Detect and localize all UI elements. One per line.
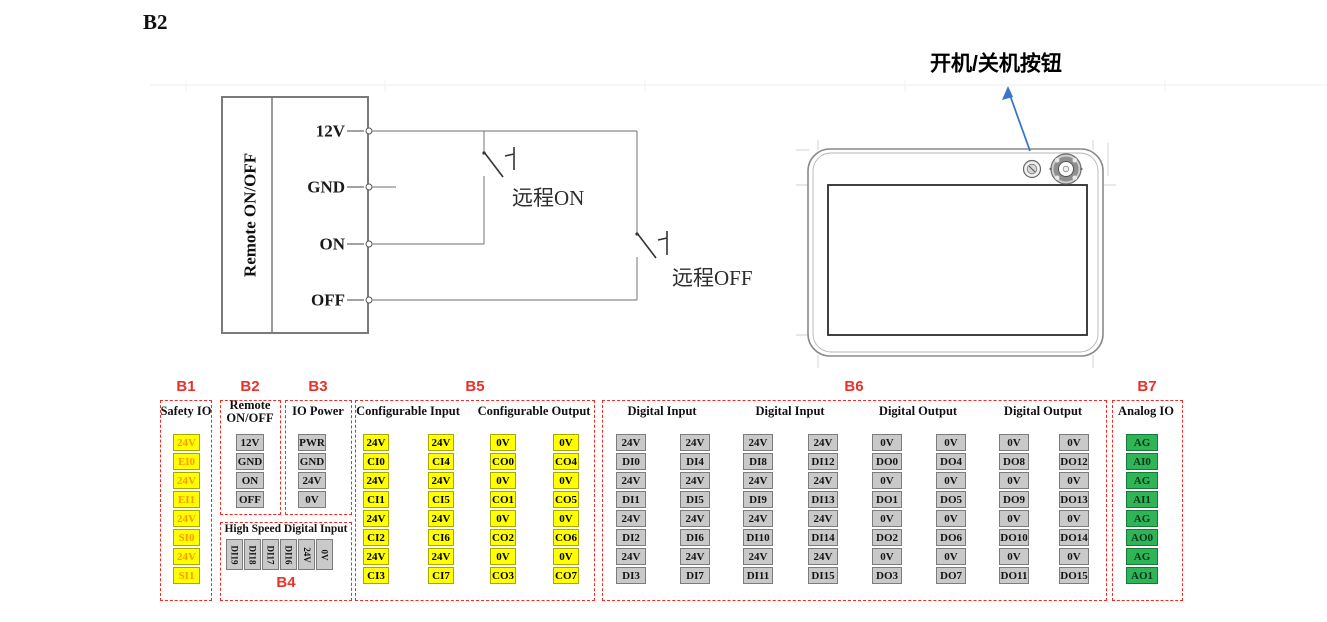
terminal-cell-24v: 24V — [616, 510, 646, 527]
terminal-cell-di0: DI0 — [616, 453, 646, 470]
group-title-b6: Digital Output — [1004, 405, 1082, 418]
terminal-cell-co1: CO1 — [490, 491, 516, 508]
terminal-cell-0v: 0V — [1059, 548, 1089, 565]
terminal-cell-do8: DO8 — [999, 453, 1029, 470]
terminal-cell-24v: 24V — [616, 472, 646, 489]
terminal-cell-0v: 0V — [936, 472, 966, 489]
terminal-cell-di7: DI7 — [680, 567, 710, 584]
terminal-cell-do1: DO1 — [872, 491, 902, 508]
section-label-b5: B5 — [465, 378, 484, 395]
terminal-cell-di19: DI19 — [226, 539, 243, 570]
terminal-cell-do0: DO0 — [872, 453, 902, 470]
terminal-cell-do6: DO6 — [936, 529, 966, 546]
terminal-cell-co5: CO5 — [553, 491, 579, 508]
terminal-cell-24v: 24V — [363, 548, 389, 565]
group-title-b6: Digital Input — [755, 405, 824, 418]
terminal-cell-do9: DO9 — [999, 491, 1029, 508]
terminal-cell-24v: 24V — [298, 539, 315, 570]
terminal-cell-co4: CO4 — [553, 453, 579, 470]
terminal-cell-do3: DO3 — [872, 567, 902, 584]
terminal-cell-ci6: CI6 — [428, 529, 454, 546]
terminal-cell-24v: 24V — [743, 472, 773, 489]
terminal-cell-12v: 12V — [236, 434, 264, 451]
terminal-cell-24v: 24V — [428, 510, 454, 527]
terminal-cell-do12: DO12 — [1059, 453, 1089, 470]
terminal-cell-24v: 24V — [808, 510, 838, 527]
terminal-cell-ag: AG — [1126, 434, 1158, 451]
terminal-cell-ci0: CI0 — [363, 453, 389, 470]
terminal-cell-do11: DO11 — [999, 567, 1029, 584]
terminal-cell-ai0: AI0 — [1126, 453, 1158, 470]
group-title-b4: High Speed Digital Input — [224, 523, 347, 536]
terminal-cell-di5: DI5 — [680, 491, 710, 508]
terminal-cell-ci2: CI2 — [363, 529, 389, 546]
terminal-cell-0v: 0V — [490, 548, 516, 565]
terminal-cell-on: ON — [236, 472, 264, 489]
terminal-cell-di6: DI6 — [680, 529, 710, 546]
terminal-cell-ci3: CI3 — [363, 567, 389, 584]
terminal-cell-24v: 24V — [680, 510, 710, 527]
terminal-cell-0v: 0V — [936, 548, 966, 565]
terminal-cell-ao1: AO1 — [1126, 567, 1158, 584]
group-title-b1: Safety IO — [160, 405, 211, 418]
terminal-cell-off: OFF — [236, 491, 264, 508]
terminal-cell-co7: CO7 — [553, 567, 579, 584]
terminal-cell-24v: 24V — [743, 434, 773, 451]
terminal-cell-0v: 0V — [872, 472, 902, 489]
terminal-cell-co3: CO3 — [490, 567, 516, 584]
terminal-cell-do7: DO7 — [936, 567, 966, 584]
terminal-cell-0v: 0V — [999, 434, 1029, 451]
terminal-cell-24v: 24V — [173, 548, 200, 565]
terminal-cell-24v: 24V — [743, 510, 773, 527]
terminal-cell-di3: DI3 — [616, 567, 646, 584]
terminal-cell-0v: 0V — [490, 434, 516, 451]
terminal-cell-di18: DI18 — [244, 539, 261, 570]
terminal-cell-0v: 0V — [936, 510, 966, 527]
terminal-cell-gnd: GND — [298, 453, 326, 470]
terminal-cell-24v: 24V — [298, 472, 326, 489]
terminal-cell-do2: DO2 — [872, 529, 902, 546]
terminal-cell-24v: 24V — [428, 548, 454, 565]
terminal-cell-ag: AG — [1126, 510, 1158, 527]
terminal-cell-di17: DI17 — [262, 539, 279, 570]
terminal-cell-gnd: GND — [236, 453, 264, 470]
terminal-cell-24v: 24V — [808, 548, 838, 565]
terminal-cell-co0: CO0 — [490, 453, 516, 470]
terminal-cell-di8: DI8 — [743, 453, 773, 470]
terminal-cell-do15: DO15 — [1059, 567, 1089, 584]
terminal-cell-0v: 0V — [872, 548, 902, 565]
terminal-cell-ag: AG — [1126, 472, 1158, 489]
terminal-cell-ag: AG — [1126, 548, 1158, 565]
page: B2 Remote ON/OFF 12V GND ON OFF — [0, 0, 1327, 622]
section-label-b2: B2 — [240, 378, 259, 395]
terminal-cell-ci5: CI5 — [428, 491, 454, 508]
group-title-b6: Digital Output — [879, 405, 957, 418]
terminal-cell-0v: 0V — [553, 510, 579, 527]
group-title-b7: Analog IO — [1118, 405, 1174, 418]
terminal-cell-do4: DO4 — [936, 453, 966, 470]
terminal-cell-do13: DO13 — [1059, 491, 1089, 508]
terminal-block-map: B1Safety IO24VEI024VEI124VSI024VSI1B2Rem… — [0, 0, 1327, 622]
group-title-b6: Digital Input — [627, 405, 696, 418]
section-label-b4: B4 — [276, 574, 295, 591]
terminal-cell-24v: 24V — [680, 434, 710, 451]
section-label-b1: B1 — [176, 378, 195, 395]
terminal-cell-0v: 0V — [490, 510, 516, 527]
terminal-cell-24v: 24V — [808, 434, 838, 451]
terminal-cell-24v: 24V — [173, 472, 200, 489]
terminal-cell-0v: 0V — [1059, 472, 1089, 489]
terminal-cell-24v: 24V — [808, 472, 838, 489]
terminal-cell-si0: SI0 — [173, 529, 200, 546]
terminal-cell-di16: DI16 — [280, 539, 297, 570]
terminal-cell-di15: DI15 — [808, 567, 838, 584]
section-label-b3: B3 — [308, 378, 327, 395]
terminal-cell-di11: DI11 — [743, 567, 773, 584]
group-title-b5: Configurable Output — [478, 405, 591, 418]
terminal-cell-di12: DI12 — [808, 453, 838, 470]
terminal-cell-0v: 0V — [999, 510, 1029, 527]
terminal-cell-ao0: AO0 — [1126, 529, 1158, 546]
section-label-b7: B7 — [1137, 378, 1156, 395]
terminal-cell-di1: DI1 — [616, 491, 646, 508]
terminal-cell-24v: 24V — [363, 472, 389, 489]
terminal-cell-24v: 24V — [363, 434, 389, 451]
terminal-cell-0v: 0V — [872, 434, 902, 451]
terminal-cell-0v: 0V — [872, 510, 902, 527]
terminal-cell-0v: 0V — [999, 548, 1029, 565]
terminal-cell-0v: 0V — [553, 548, 579, 565]
terminal-cell-24v: 24V — [363, 510, 389, 527]
terminal-cell-0v: 0V — [298, 491, 326, 508]
terminal-cell-24v: 24V — [616, 434, 646, 451]
terminal-cell-24v: 24V — [428, 434, 454, 451]
terminal-cell-ci7: CI7 — [428, 567, 454, 584]
terminal-cell-24v: 24V — [680, 472, 710, 489]
terminal-cell-24v: 24V — [680, 548, 710, 565]
terminal-cell-0v: 0V — [490, 472, 516, 489]
terminal-cell-24v: 24V — [428, 472, 454, 489]
section-label-b6: B6 — [844, 378, 863, 395]
group-title-b3: IO Power — [292, 405, 344, 418]
terminal-cell-0v: 0V — [553, 472, 579, 489]
terminal-cell-24v: 24V — [743, 548, 773, 565]
terminal-cell-0v: 0V — [316, 539, 333, 570]
terminal-cell-24v: 24V — [616, 548, 646, 565]
terminal-cell-0v: 0V — [936, 434, 966, 451]
terminal-cell-24v: 24V — [173, 510, 200, 527]
terminal-cell-co6: CO6 — [553, 529, 579, 546]
terminal-cell-0v: 0V — [999, 472, 1029, 489]
terminal-cell-pwr: PWR — [298, 434, 326, 451]
section-box-b6 — [602, 400, 1107, 601]
terminal-cell-di10: DI10 — [743, 529, 773, 546]
terminal-cell-di9: DI9 — [743, 491, 773, 508]
terminal-cell-di4: DI4 — [680, 453, 710, 470]
terminal-cell-co2: CO2 — [490, 529, 516, 546]
terminal-cell-si1: SI1 — [173, 567, 200, 584]
terminal-cell-di14: DI14 — [808, 529, 838, 546]
terminal-cell-di13: DI13 — [808, 491, 838, 508]
terminal-cell-24v: 24V — [173, 434, 200, 451]
terminal-cell-ci4: CI4 — [428, 453, 454, 470]
terminal-cell-do14: DO14 — [1059, 529, 1089, 546]
terminal-cell-do10: DO10 — [999, 529, 1029, 546]
terminal-cell-0v: 0V — [1059, 434, 1089, 451]
group-title-b5: Configurable Input — [356, 405, 460, 418]
terminal-cell-0v: 0V — [553, 434, 579, 451]
group-title-b2: Remote ON/OFF — [226, 399, 273, 425]
terminal-cell-ei0: EI0 — [173, 453, 200, 470]
terminal-cell-ai1: AI1 — [1126, 491, 1158, 508]
terminal-cell-ei1: EI1 — [173, 491, 200, 508]
terminal-cell-do5: DO5 — [936, 491, 966, 508]
terminal-cell-ci1: CI1 — [363, 491, 389, 508]
terminal-cell-0v: 0V — [1059, 510, 1089, 527]
terminal-cell-di2: DI2 — [616, 529, 646, 546]
